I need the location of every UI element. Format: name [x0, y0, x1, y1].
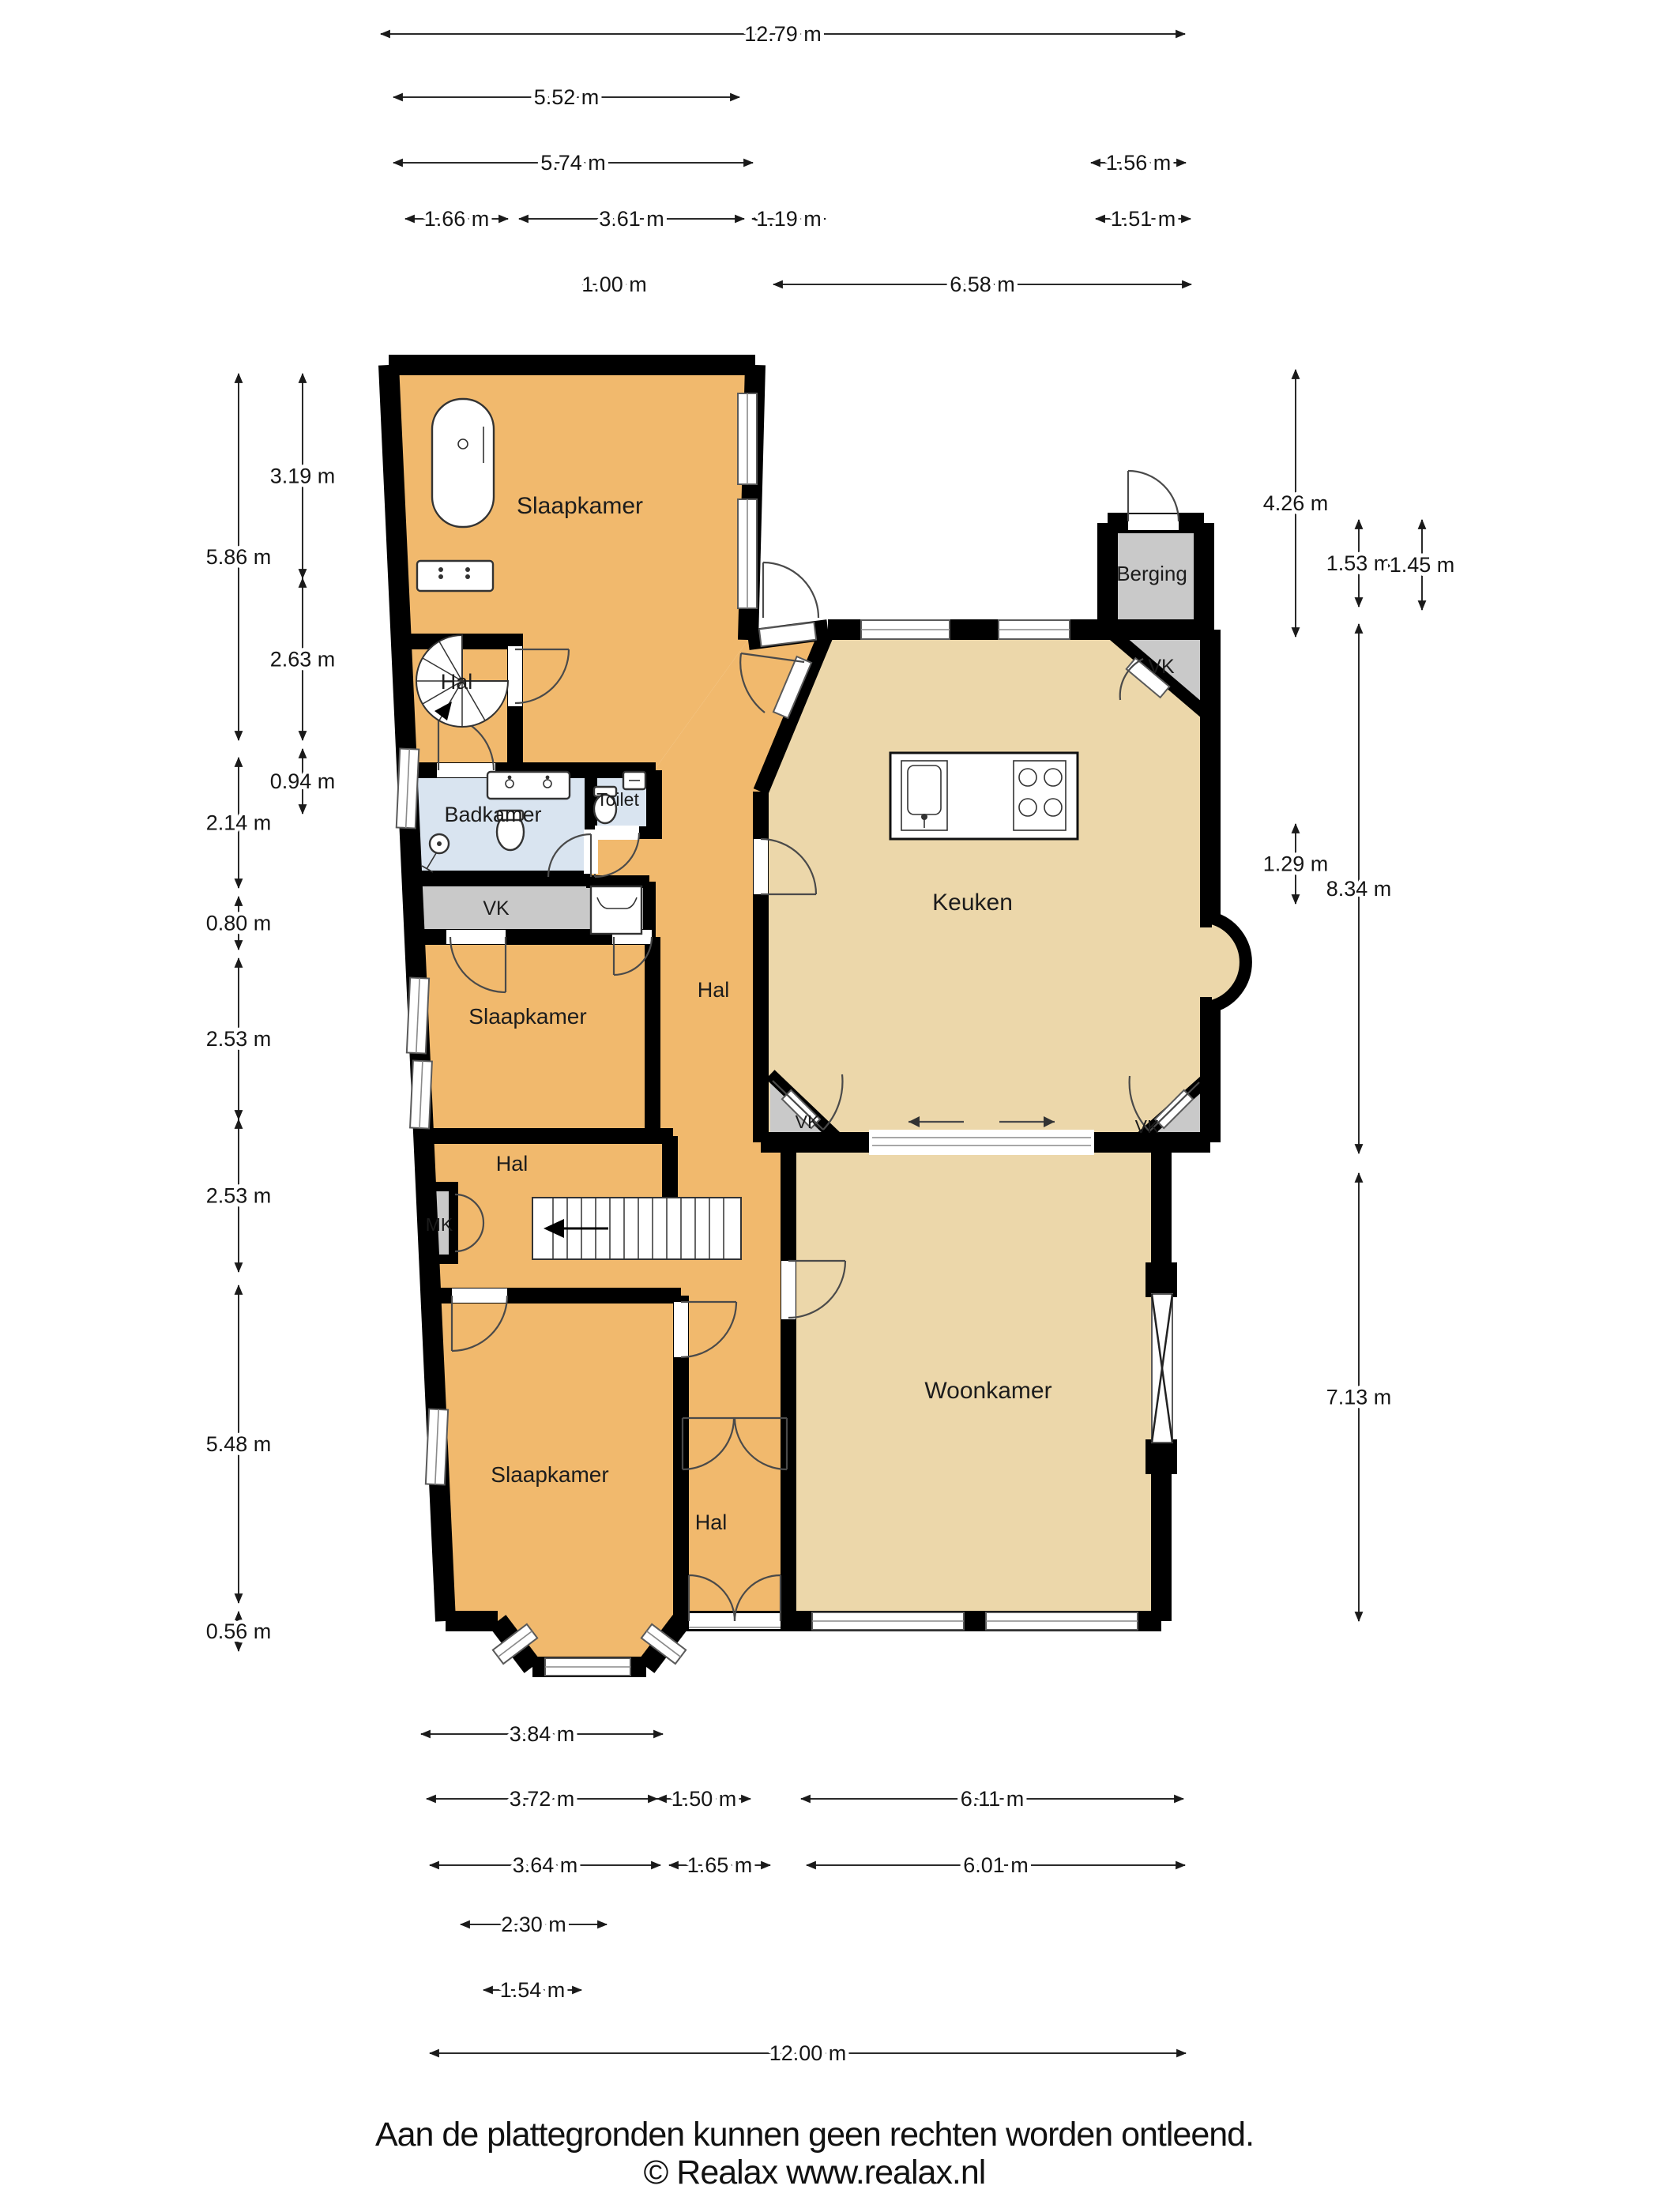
- dimension-6_58_m-9: 6.58 m: [773, 273, 1191, 296]
- dimension-label: 7.13 m: [1326, 1386, 1392, 1409]
- dimension-label: 5.52 m: [534, 85, 600, 109]
- room-label-mk: MK: [426, 1214, 453, 1235]
- room-label-hal-spiral: Hal: [441, 670, 473, 694]
- dimension-label: 1.66 m: [424, 207, 490, 231]
- footer-copyright: © Realax www.realax.nl: [0, 2154, 1629, 2192]
- dimension-3_84_m-26: 3.84 m: [421, 1722, 663, 1746]
- dimension-1_51_m-7: 1.51 m: [1096, 207, 1191, 231]
- dimension-label: 0.56 m: [206, 1619, 272, 1643]
- dimension-label: 1.19 m: [756, 207, 822, 231]
- room-label-vk-left: VK: [483, 897, 510, 920]
- dimension-1_29_m-21: 1.29 m: [1263, 824, 1329, 904]
- dimension-label: 3.19 m: [270, 465, 336, 488]
- dimension-label: 1.56 m: [1106, 151, 1172, 175]
- room-label-hal-bottom: Hal: [695, 1510, 728, 1534]
- wall-pad: [1145, 1439, 1177, 1474]
- dimension-label: 1.53 m: [1326, 551, 1392, 575]
- dimension-1_50_m-28: 1.50 m: [657, 1787, 750, 1811]
- dimension-4_26_m-20: 4.26 m: [1263, 370, 1329, 637]
- dimension-label: 1.45 m: [1390, 553, 1455, 577]
- floorplan-canvas: SlaapkamerHalBadkamerToiletVKSlaapkamerH…: [0, 0, 1659, 2212]
- dimension-label: 2.63 m: [270, 648, 336, 671]
- dimension-2_14_m-11: 2.14 m: [206, 758, 272, 888]
- door-exterior-corridor: [759, 562, 818, 646]
- dimension-3_19_m-17: 3.19 m: [270, 374, 336, 578]
- door-berging-exterior: [1128, 471, 1179, 530]
- dimension-label: 6.58 m: [950, 273, 1015, 296]
- dimension-label: 2.30 m: [501, 1913, 566, 1936]
- room-label-hal-mid: Hal: [496, 1152, 529, 1176]
- room-label-vk-topright: VK: [1148, 656, 1175, 678]
- window-left-slaapbottom: [426, 1409, 448, 1485]
- room-label-woonkamer: Woonkamer: [924, 1378, 1051, 1404]
- dimension-label: 8.34 m: [1326, 877, 1392, 901]
- dimension-label: 4.26 m: [1263, 491, 1329, 515]
- dimension-5_48_m-15: 5.48 m: [206, 1285, 272, 1603]
- window-left-badkamer: [397, 749, 419, 829]
- dimension-label: 12.79 m: [744, 22, 822, 46]
- dimension-label: 1.00 m: [581, 273, 647, 296]
- bathtub: [432, 399, 494, 527]
- floorplan-page: SlaapkamerHalBadkamerToiletVKSlaapkamerH…: [0, 0, 1659, 2212]
- dimension-label: 3.64 m: [513, 1853, 578, 1877]
- dimension-label: 3.72 m: [510, 1787, 575, 1811]
- dimension-1_45_m-25: 1.45 m: [1390, 520, 1455, 610]
- window-bedroom-right-2: [738, 499, 757, 608]
- dimension-12_00_m-35: 12.00 m: [430, 2041, 1186, 2065]
- dimension-label: 5.74 m: [540, 151, 606, 175]
- dimension-1_56_m-3: 1.56 m: [1091, 151, 1186, 175]
- room-label-slaapkamer-top: Slaapkamer: [517, 493, 643, 519]
- dimension-label: 2.53 m: [206, 1184, 272, 1208]
- dimension-0_56_m-16: 0.56 m: [206, 1612, 272, 1651]
- dimension-label: 1.51 m: [1111, 207, 1176, 231]
- room-label-keuken: Keuken: [932, 890, 1013, 916]
- room-label-berging: Berging: [1116, 562, 1187, 585]
- window-left-slaapmid-1: [407, 978, 429, 1054]
- dimension-1_65_m-31: 1.65 m: [669, 1853, 770, 1877]
- window-kitchen-top-2: [999, 620, 1070, 639]
- dimension-3_64_m-30: 3.64 m: [430, 1853, 660, 1877]
- dimension-1_66_m-4: 1.66 m: [405, 207, 508, 231]
- window-woonkamer-bottom-2: [986, 1612, 1138, 1630]
- dimension-label: 6.01 m: [963, 1853, 1029, 1877]
- dimension-1_53_m-22: 1.53 m: [1326, 520, 1392, 607]
- room-label-vk-kitchen-left: VK: [796, 1112, 820, 1132]
- dimension-5_86_m-10: 5.86 m: [206, 374, 272, 740]
- dimension-label: 3.84 m: [510, 1722, 575, 1746]
- chimney-bump-arc: [1212, 918, 1246, 1006]
- dimension-12_79_m-0: 12.79 m: [381, 22, 1185, 46]
- dimension-2_63_m-18: 2.63 m: [270, 578, 336, 740]
- dimension-6_01_m-32: 6.01 m: [807, 1853, 1185, 1877]
- room-slaapkamer-mid: [417, 937, 653, 1136]
- dimension-1_00_m-8: 1.00 m: [581, 273, 647, 296]
- dimension-6_11_m-29: 6.11 m: [801, 1787, 1183, 1811]
- window-woonkamer-bottom-1: [812, 1612, 964, 1630]
- dresser: [417, 561, 493, 591]
- washing-machine: [591, 886, 641, 934]
- room-label-vk-kitchen-right: VK: [1135, 1116, 1160, 1137]
- dimension-3_72_m-27: 3.72 m: [427, 1787, 657, 1811]
- dimension-5_52_m-1: 5.52 m: [393, 85, 739, 109]
- dimension-label: 1.54 m: [500, 1978, 566, 2002]
- dimension-8_34_m-23: 8.34 m: [1326, 624, 1392, 1153]
- vanity-double-sink: [487, 772, 570, 799]
- wall-pad: [1145, 1262, 1177, 1297]
- dimension-label: 2.53 m: [206, 1027, 272, 1051]
- dimension-label: 5.86 m: [206, 545, 272, 569]
- dimension-2_53_m-14: 2.53 m: [206, 1119, 272, 1272]
- dimension-3_61_m-5: 3.61 m: [519, 207, 744, 231]
- dimension-label: 0.80 m: [206, 912, 272, 935]
- straight-staircase: [532, 1198, 741, 1259]
- dimension-1_19_m-6: 1.19 m: [752, 207, 826, 231]
- room-keuken: [761, 630, 1210, 1142]
- dimension-1_54_m-34: 1.54 m: [483, 1978, 581, 2002]
- room-label-hal-corridor: Hal: [698, 978, 730, 1002]
- room-label-badkamer: Badkamer: [444, 803, 541, 826]
- dimension-7_13_m-24: 7.13 m: [1326, 1173, 1392, 1621]
- dimension-label: 1.65 m: [687, 1853, 753, 1877]
- dimension-2_53_m-13: 2.53 m: [206, 958, 272, 1119]
- dimension-0_80_m-12: 0.80 m: [206, 897, 272, 950]
- window-bay-bottom: [545, 1658, 630, 1676]
- kitchen-island: [890, 753, 1078, 839]
- room-label-toilet: Toilet: [596, 789, 639, 810]
- dimension-0_94_m-19: 0.94 m: [270, 749, 336, 814]
- dimension-5_74_m-2: 5.74 m: [393, 151, 753, 175]
- toilet-room-sink: [623, 772, 645, 789]
- footer-disclaimer: Aan de plattegronden kunnen geen rechten…: [0, 2116, 1629, 2154]
- dimension-label: 1.50 m: [671, 1787, 737, 1811]
- dimension-label: 3.61 m: [599, 207, 664, 231]
- room-label-slaapkamer-bottom: Slaapkamer: [491, 1462, 608, 1487]
- dimension-label: 2.14 m: [206, 811, 272, 835]
- dimension-label: 5.48 m: [206, 1432, 272, 1456]
- dimension-label: 6.11 m: [961, 1787, 1025, 1811]
- dimension-label: 0.94 m: [270, 769, 336, 793]
- window-bedroom-right-1: [738, 393, 757, 484]
- room-label-slaapkamer-mid: Slaapkamer: [468, 1004, 586, 1029]
- window-kitchen-top-1: [861, 620, 950, 639]
- dimension-label: 1.29 m: [1263, 852, 1329, 876]
- dimension-label: 12.00 m: [769, 2041, 847, 2065]
- window-woonkamer-right-x: [1152, 1294, 1172, 1443]
- dimension-2_30_m-33: 2.30 m: [461, 1913, 607, 1936]
- window-left-slaapmid-2: [410, 1060, 432, 1128]
